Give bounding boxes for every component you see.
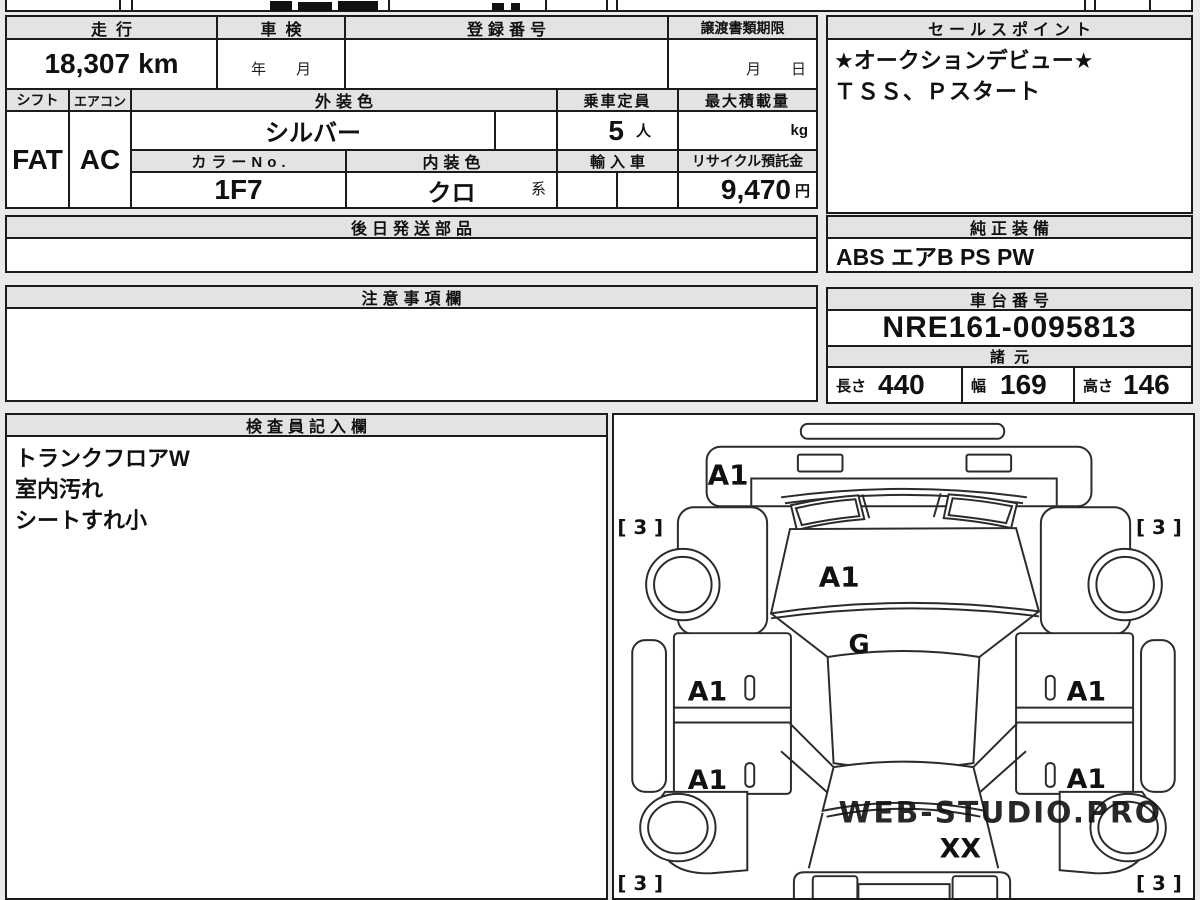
height-value: 146	[1123, 369, 1170, 401]
tire-front-right-label: [ 3 ]	[1136, 516, 1182, 539]
mileage-value: 18,307	[44, 48, 130, 80]
divider	[1084, 0, 1086, 12]
sales-point-header: セールスポイント	[826, 15, 1193, 40]
aircon-value: AC	[68, 110, 132, 209]
windshield-shape	[771, 528, 1039, 613]
divider	[388, 0, 390, 12]
car-diagram-box: WEB-STUDIO.PRO A1 A1 G A1 A1 A1 A1 XX [ …	[612, 413, 1195, 900]
interior-color-cell: クロ 系	[345, 171, 558, 209]
inspector-notes-box: トランクフロアW 室内汚れ シートすれ小	[5, 435, 608, 900]
shaken-placeholder: 年 月	[251, 58, 311, 79]
import-header: 輸入車	[556, 149, 679, 173]
shaken-cell: 年 月	[216, 38, 346, 90]
clipped-text-artifact	[511, 3, 520, 10]
clipped-text-artifact	[270, 1, 292, 11]
rear-bumper-notch-right	[953, 876, 998, 898]
color-no-header: カラーNo.	[130, 149, 347, 173]
shaken-header: 車検	[216, 15, 346, 40]
recycle-header: リサイクル預託金	[677, 149, 818, 173]
divider	[1094, 0, 1096, 12]
capacity-value: 5	[608, 115, 624, 147]
headlight-right-shape	[966, 455, 1011, 472]
tire-rear-right-label: [ 3 ]	[1136, 872, 1182, 895]
divider	[606, 0, 608, 12]
interior-color-header: 内装色	[345, 149, 558, 173]
transfer-deadline-header: 譲渡書類期限	[667, 15, 818, 40]
exterior-color-header: 外装色	[130, 88, 558, 112]
windshield-bottom-arc	[771, 608, 1039, 618]
clipped-text-artifact	[338, 1, 378, 11]
mileage-cell: 18,307 km	[5, 38, 218, 90]
trunk-damage-label: XX	[940, 833, 982, 864]
equipment-value: ABS エアB PS PW	[826, 237, 1193, 273]
left-sill-shape	[632, 640, 666, 792]
spec-length-cell: 長さ 440	[826, 366, 963, 404]
right-front-door-handle	[1046, 676, 1055, 700]
front-spoiler-shape	[801, 424, 1004, 439]
interior-color-value: クロ	[428, 173, 476, 208]
inspector-note: トランクフロアW	[15, 443, 598, 474]
headlight-left-shape	[798, 455, 843, 472]
front-right-wheel-inner	[1096, 557, 1154, 613]
front-right-door-damage-label: A1	[1067, 677, 1106, 708]
sales-point-line: ★オークションデビュー★	[834, 45, 1185, 76]
color-no-value: 1F7	[130, 171, 347, 209]
rear-right-door-damage-label: A1	[1067, 764, 1106, 795]
divider	[1149, 0, 1151, 12]
roof-shape	[828, 651, 980, 769]
chassis-number-value: NRE161-0095813	[826, 309, 1193, 347]
right-rear-door-handle	[1046, 763, 1055, 787]
watermark: WEB-STUDIO.PRO	[839, 796, 1163, 831]
left-front-door-handle	[745, 676, 754, 700]
width-label: 幅	[971, 375, 986, 396]
rear-left-door-damage-label: A1	[688, 765, 727, 796]
height-label: 高さ	[1083, 375, 1113, 396]
rear-left-wheel-inner	[648, 802, 708, 854]
divider	[119, 0, 121, 12]
later-parts-box	[5, 237, 818, 273]
sales-point-box: ★オークションデビュー★ ＴＳＳ、Ｐスタート	[826, 38, 1193, 214]
registration-header: 登録番号	[344, 15, 669, 40]
capacity-cell: 5 人	[556, 110, 679, 151]
tire-front-left-label: [ 3 ]	[617, 516, 663, 539]
import-cell-1	[556, 171, 618, 209]
recycle-cell: 9,470 円	[677, 171, 818, 209]
registration-cell	[344, 38, 669, 90]
aircon-header: エアコン	[68, 88, 132, 112]
exterior-color-value: シルバー	[130, 110, 496, 151]
auction-sheet: 走行 車検 登録番号 譲渡書類期限 18,307 km 年 月 月 日 シフト …	[0, 0, 1200, 900]
front-bumper-shape	[707, 447, 1092, 507]
caution-notes-header: 注意事項欄	[5, 285, 818, 309]
hood-damage-label: A1	[708, 458, 749, 491]
later-parts-header: 後日発送部品	[5, 215, 818, 239]
sales-point-line: ＴＳＳ、Ｐスタート	[834, 76, 1185, 107]
clipped-row-artifact	[5, 0, 1193, 12]
specs-header: 諸元	[826, 345, 1193, 368]
mileage-header: 走行	[5, 15, 218, 40]
front-left-wheel-inner	[654, 557, 712, 613]
length-label: 長さ	[836, 375, 866, 396]
recycle-value: 9,470	[721, 174, 791, 206]
divider	[131, 0, 133, 12]
car-diagram: WEB-STUDIO.PRO A1 A1 G A1 A1 A1 A1 XX [ …	[614, 415, 1193, 898]
clipped-text-artifact	[492, 3, 504, 10]
clipped-text-artifact	[298, 2, 332, 11]
rear-bumper-notch-left	[813, 876, 858, 898]
maxload-header: 最大積載量	[677, 88, 818, 112]
divider	[616, 0, 618, 12]
tire-rear-left-label: [ 3 ]	[617, 872, 663, 895]
maxload-cell: kg	[677, 110, 818, 151]
transfer-deadline-cell: 月 日	[667, 38, 818, 90]
length-value: 440	[878, 369, 925, 401]
equipment-header: 純正装備	[826, 215, 1193, 239]
left-rear-door-handle	[745, 763, 754, 787]
width-value: 169	[1000, 369, 1047, 401]
capacity-header: 乗車定員	[556, 88, 679, 112]
recycle-unit: 円	[795, 180, 810, 201]
import-cell-2	[616, 171, 679, 209]
interior-color-suffix: 系	[531, 178, 546, 199]
inspector-note: シートすれ小	[15, 505, 598, 536]
inspector-note: 室内汚れ	[15, 474, 598, 505]
windshield-damage-label: A1	[819, 561, 860, 594]
shift-value: FAT	[5, 110, 70, 209]
capacity-unit: 人	[636, 120, 651, 141]
roof-damage-label: G	[848, 630, 869, 660]
inspector-header: 検査員記入欄	[5, 413, 608, 437]
exterior-color-extra-cell	[494, 110, 558, 151]
spec-height-cell: 高さ 146	[1073, 366, 1193, 404]
divider	[545, 0, 547, 12]
right-sill-shape	[1141, 640, 1175, 792]
transfer-placeholder: 月 日	[746, 58, 806, 79]
chassis-number-header: 車台番号	[826, 287, 1193, 311]
shift-header: シフト	[5, 88, 70, 112]
mileage-unit: km	[138, 48, 178, 80]
front-left-door-damage-label: A1	[688, 677, 727, 708]
caution-notes-box	[5, 307, 818, 402]
spec-width-cell: 幅 169	[961, 366, 1075, 404]
maxload-unit: kg	[790, 122, 808, 139]
